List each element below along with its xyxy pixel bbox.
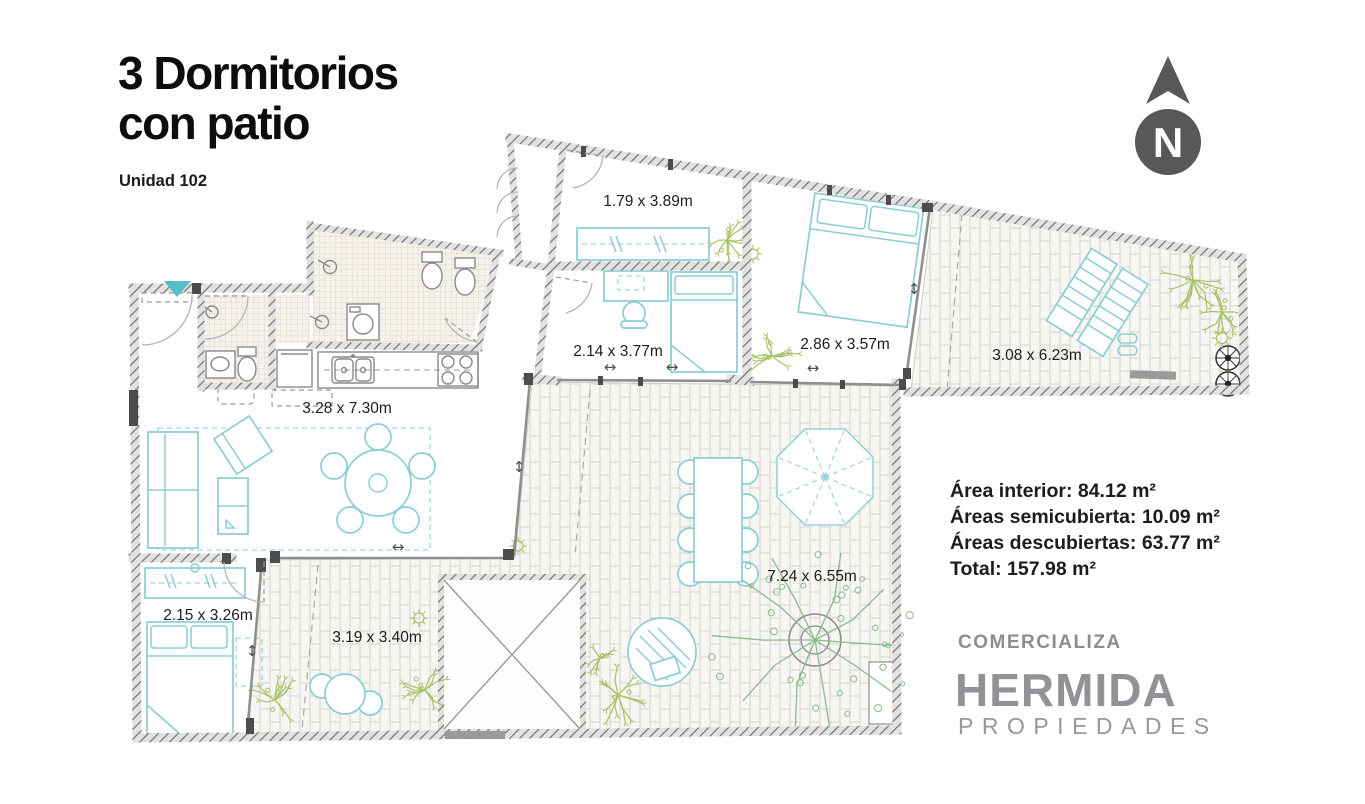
fridge xyxy=(277,350,312,387)
double-bed xyxy=(798,193,924,327)
armchair xyxy=(214,416,272,474)
north-arrow: N xyxy=(1135,56,1201,175)
entrance-door xyxy=(142,293,192,345)
washing-machine xyxy=(347,304,379,340)
north-letter: N xyxy=(1153,119,1183,166)
window-wall xyxy=(557,380,731,381)
room-label-dormitorio-1: 1.79 x 3.89m xyxy=(603,193,693,210)
dresser xyxy=(577,228,709,260)
patio-table xyxy=(325,674,365,714)
floor-plan-drawing: ↔ ↔ ↔ ↔ ↕ ↕ ↕ 1.79 x 3.89m 2.14 x 3.77m … xyxy=(0,0,1365,804)
svg-text:↔: ↔ xyxy=(604,358,617,376)
room-label-patio-grande: 7.24 x 6.55m xyxy=(767,568,857,585)
skylight xyxy=(441,577,583,732)
bedroom2-door xyxy=(556,277,592,313)
room-label-patio-chico: 3.19 x 3.40m xyxy=(332,629,422,646)
room-label-dormitorio-2: 2.14 x 3.77m xyxy=(573,343,663,360)
room-label-estar-cocina: 3.28 x 7.30m xyxy=(302,400,392,417)
umbrella xyxy=(777,429,873,525)
floor-plan-page: 3 Dormitorios con patio Unidad 102 Área … xyxy=(0,0,1365,804)
round-lounge xyxy=(628,618,696,686)
svg-text:↕: ↕ xyxy=(246,642,259,660)
vanity-sink xyxy=(206,351,235,378)
bedroom3-furniture xyxy=(145,564,262,734)
bidet xyxy=(455,258,475,295)
room-label-terraza: 3.08 x 6.23m xyxy=(992,347,1082,364)
living-furniture xyxy=(148,416,435,550)
bedroom1-furniture xyxy=(577,228,709,260)
single-bed xyxy=(671,272,737,372)
dining-table-round xyxy=(321,424,435,533)
svg-text:↔: ↔ xyxy=(392,538,405,556)
north-arrow-pointer xyxy=(1146,56,1190,104)
svg-text:↔: ↔ xyxy=(666,358,679,376)
kitchen xyxy=(272,350,478,406)
room-label-dormitorio-3: 2.15 x 3.26m xyxy=(163,607,253,624)
toilet xyxy=(422,252,442,289)
wheel-1 xyxy=(1216,346,1240,370)
planter xyxy=(869,662,893,724)
svg-text:↔: ↔ xyxy=(807,359,820,377)
svg-text:↕: ↕ xyxy=(908,280,921,298)
bedroom-principal-furniture xyxy=(798,193,924,327)
room-label-dormitorio-principal: 2.86 x 3.57m xyxy=(800,336,890,353)
bed-3 xyxy=(147,622,233,734)
toilet-2 xyxy=(238,347,256,381)
svg-text:↕: ↕ xyxy=(513,458,526,476)
laundry-tub-dashed xyxy=(218,388,254,404)
